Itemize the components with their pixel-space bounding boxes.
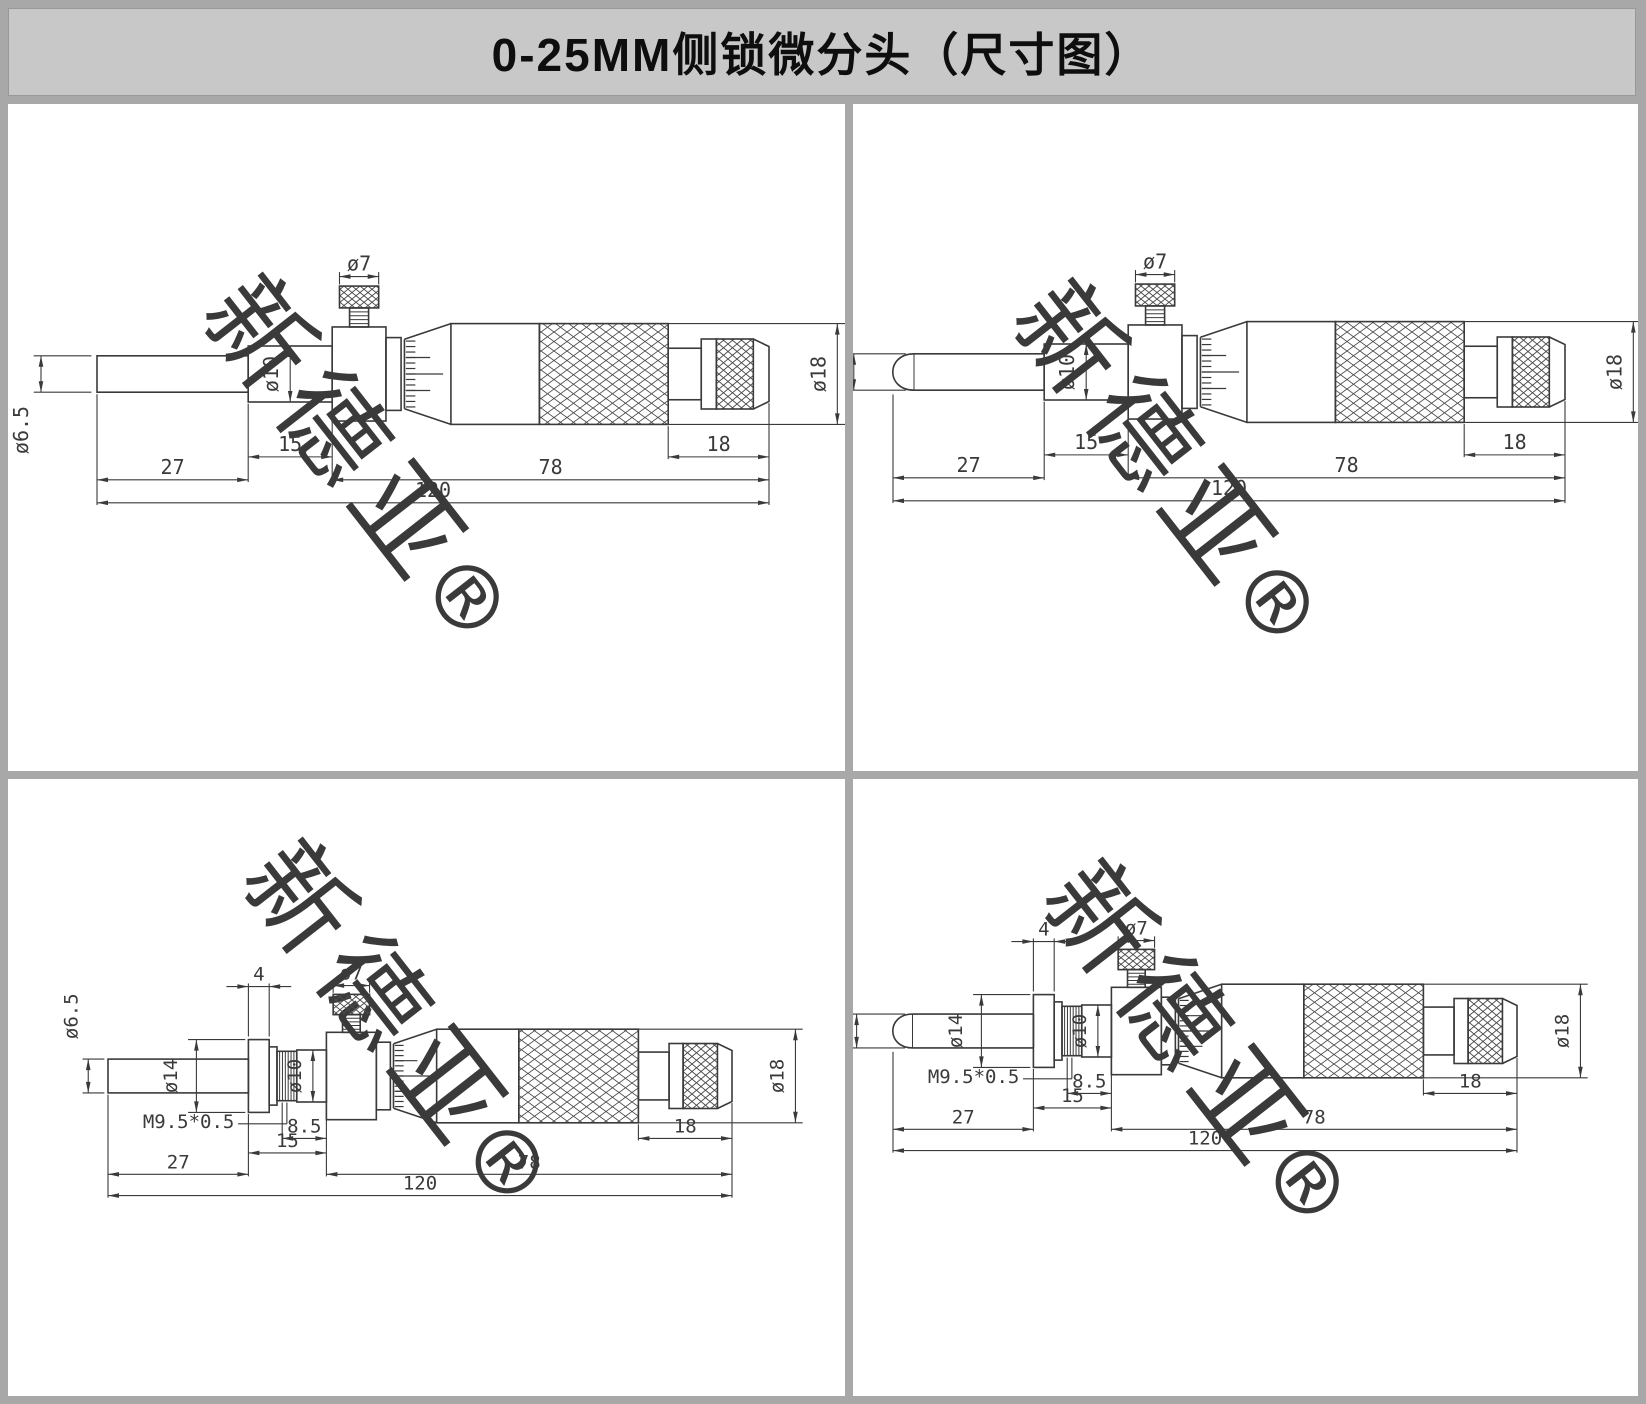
dim-label: ø7 — [1125, 918, 1148, 940]
dim-label: 15 — [278, 432, 302, 456]
dim-label: 27 — [161, 455, 185, 479]
dim-label: ø14 — [945, 1014, 967, 1048]
dim-label: ø7 — [347, 252, 371, 276]
dim-label: ø10 — [1069, 1014, 1091, 1048]
thread-label: M9.5*0.5 — [928, 1066, 1020, 1088]
dim-label: 15 — [276, 1130, 299, 1152]
dim-label: 27 — [957, 453, 981, 477]
dim-label: 120 — [415, 478, 451, 502]
dim-label: ø18 — [1551, 1014, 1573, 1048]
dim-label: 78 — [539, 455, 563, 479]
dim-label: 120 — [403, 1173, 437, 1195]
dim-label: ø18 — [1602, 354, 1626, 390]
dim-label: 78 — [518, 1151, 541, 1173]
drawing-panel-bottom-right: 新德亚®ø78.518152778120ø18ø10ø6.5ø144M9.5*0… — [853, 779, 1638, 1396]
dim-label: 4 — [1038, 919, 1049, 941]
dim-label: 120 — [1188, 1128, 1222, 1150]
watermark-text: 新德亚® — [178, 254, 541, 671]
dim-label: ø10 — [1055, 354, 1079, 390]
drawing-panel-top-right: 新德亚®ø718152778120ø18ø10ø6.5 — [853, 104, 1638, 771]
dim-label: 27 — [952, 1106, 975, 1128]
dim-label: ø14 — [160, 1059, 182, 1093]
page: 0-25MM侧锁微分头（尺寸图） 新德亚®ø718152778120ø18ø10… — [0, 0, 1646, 1404]
dim-label: 4 — [253, 964, 264, 986]
drawing-panel-bottom-left: 新德亚®ø78.518152778120ø18ø10ø6.5ø144M9.5*0… — [8, 779, 845, 1396]
dim-label: 18 — [674, 1115, 697, 1137]
page-title: 0-25MM侧锁微分头（尺寸图） — [492, 19, 1153, 85]
dim-label: 78 — [1335, 453, 1359, 477]
dim-label: ø18 — [806, 356, 830, 392]
dim-label: 18 — [1459, 1070, 1482, 1092]
dim-label: ø6.5 — [60, 993, 82, 1039]
dim-label: ø7 — [340, 963, 363, 985]
dim-label: 15 — [1061, 1085, 1084, 1107]
dim-label: 18 — [707, 432, 731, 456]
dim-label: ø18 — [766, 1059, 788, 1093]
dim-label: ø10 — [284, 1059, 306, 1093]
dim-label: 78 — [1303, 1106, 1326, 1128]
dim-label: ø7 — [1143, 250, 1167, 274]
title-bar: 0-25MM侧锁微分头（尺寸图） — [8, 8, 1636, 96]
dim-label: ø10 — [259, 356, 283, 392]
dim-label: 120 — [1211, 476, 1247, 500]
dim-label: ø6.5 — [9, 406, 33, 454]
thread-label: M9.5*0.5 — [143, 1111, 235, 1133]
dim-label: 15 — [1074, 430, 1098, 454]
drawing-panel-top-left: 新德亚®ø718152778120ø18ø10ø6.5 — [8, 104, 845, 771]
dim-label: 18 — [1503, 430, 1527, 454]
dim-label: 27 — [167, 1151, 190, 1173]
